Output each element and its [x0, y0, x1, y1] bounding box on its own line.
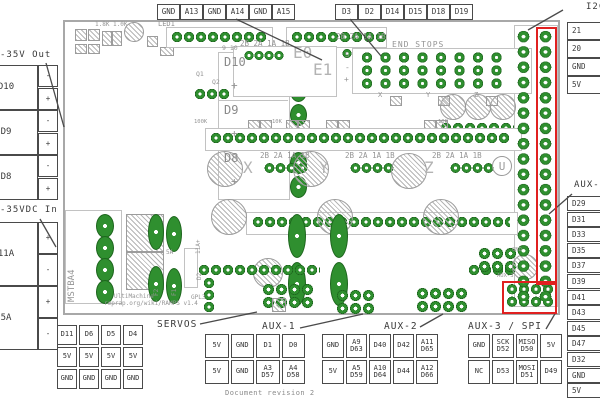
servo-pin: 5V: [123, 347, 143, 367]
aux3-pin: D49: [540, 360, 562, 384]
driver-pads-e0: [244, 50, 284, 61]
aux4-pin: D43: [567, 305, 600, 320]
aux2-pin: 5V: [322, 360, 344, 384]
header-pads: [210, 132, 510, 144]
diode-component: [184, 248, 198, 288]
silkscreen-f2: F2: [154, 272, 160, 296]
aux2-pin: GND: [322, 334, 344, 358]
in-11a-plus: +: [38, 222, 58, 254]
aux4-pin: D47: [567, 336, 600, 351]
silkscreen-d10: D10: [224, 56, 246, 68]
i2c-pin-20: 20: [567, 40, 600, 58]
resistor-component: [88, 44, 100, 54]
resistor-component: [272, 298, 286, 312]
aux4-pin: D37: [567, 258, 600, 273]
out-d9-plus: +: [38, 133, 58, 155]
servo-pin: 5V: [57, 347, 77, 367]
silkscreen-plus: +: [231, 80, 238, 91]
endstop-pin-d15: D15: [404, 4, 427, 20]
resistor-component: [486, 96, 498, 106]
silkscreen-endstop-x: X: [378, 92, 382, 99]
in-5a-name: 5A: [0, 286, 38, 350]
silkscreen-11a: 11A+: [196, 214, 202, 254]
aux4-highlight: [536, 27, 557, 285]
aux1-pin: D0: [282, 334, 306, 358]
servo-pin: GND: [79, 369, 99, 389]
aux1-pin: A4 D58: [282, 360, 306, 384]
thermistor-pin-gnd: GND: [157, 4, 180, 20]
aux4-pin: D33: [567, 227, 600, 242]
out-d10-minus: -: [38, 65, 58, 87]
silkscreen-aux3: AUX-3: [497, 274, 514, 280]
silkscreen-y: Y: [319, 160, 329, 176]
aux2-table: GND A9 D63 D40 D42 A11 D65 5V A5 D59 A10…: [322, 334, 438, 384]
servo-pin: GND: [57, 369, 77, 389]
aux3-pin: MISO D50: [516, 334, 538, 358]
servo-pin: GND: [123, 369, 143, 389]
silkscreen-s: S: [345, 52, 349, 59]
out-d8-plus: +: [38, 178, 58, 200]
silkscreen-plus: +: [344, 76, 349, 84]
aux4-pin: D29: [567, 196, 600, 211]
endstop-pin-d18: D18: [427, 4, 450, 20]
servos-label: SERVOS: [157, 319, 197, 330]
aux4-pin: D39: [567, 274, 600, 289]
endstop-pin-d14: D14: [381, 4, 404, 20]
thermistor-pin-gnd: GND: [203, 4, 226, 20]
i2c-pin-21: 21: [567, 22, 600, 40]
servo-pin: D4: [123, 325, 143, 345]
out-d8-name: D8: [0, 155, 38, 200]
silkscreen-coilpins-y: 2B 2A 1A 1B: [345, 152, 395, 160]
silkscreen-q1: Q1: [196, 71, 204, 78]
silkscreen-reprap-url: reprap.org/wiki/RAMPS v1.4: [104, 301, 198, 307]
aux1-pin: D1: [256, 334, 280, 358]
aux4-pin-gnd: GND: [567, 368, 600, 383]
thermistor-pin-a13: A13: [180, 4, 203, 20]
silkscreen-minus: -: [345, 64, 350, 72]
fuse-pad: [166, 216, 182, 252]
aux4-pin: D41: [567, 290, 600, 305]
aux2-pin: A5 D59: [346, 360, 368, 384]
resistor-component: [88, 29, 100, 41]
servo-pin: D11: [57, 325, 77, 345]
silkscreen-resistor-values: 1.8K 1.0K: [95, 22, 128, 28]
fuse-pad: [288, 214, 306, 258]
aux2-pin: A11 D65: [416, 334, 438, 358]
servo-pin: D5: [101, 325, 121, 345]
aux3-pin: SCK D52: [492, 334, 514, 358]
resistor-component: [102, 31, 112, 46]
servo-pin: GND: [101, 369, 121, 389]
servo-pin: 5V: [101, 347, 121, 367]
out-d10-plus: +: [38, 88, 58, 110]
aux1-pin: GND: [231, 360, 255, 384]
header-pads: [198, 264, 320, 276]
terminal-pad: [96, 236, 114, 260]
aux2-board-pads: [416, 287, 468, 313]
in-11a-name: 11A: [0, 222, 38, 286]
out-d9-minus: -: [38, 110, 58, 132]
aux4-pads-col1: [517, 29, 530, 301]
power-in-label: -35VDC In: [0, 205, 58, 215]
silkscreen-coilpins-e0: 2B 2A 1A 1B: [240, 40, 290, 48]
aux4-pin: D31: [567, 212, 600, 227]
aux3-pin: MOSI D51: [516, 360, 538, 384]
silkscreen-plus: +: [231, 128, 238, 139]
thermistor-pin-gnd: GND: [249, 4, 272, 20]
i2c-label: I2C: [586, 2, 600, 12]
fuse-pad: [148, 214, 164, 250]
header-block-pads: [336, 289, 375, 315]
thermistor-pin-a14: A14: [226, 4, 249, 20]
endstop-pads: [358, 51, 506, 90]
silkscreen-coilpins-x: 2B 2A 1A 1B: [260, 152, 310, 160]
silkscreen-9-10: 9 10: [222, 45, 238, 52]
aux4-pin: D35: [567, 243, 600, 258]
aux4-pin: D45: [567, 321, 600, 336]
aux4-label: AUX-4: [574, 180, 600, 190]
silkscreen-5a: 5A: [166, 250, 173, 256]
ultimachine-logo: U: [492, 156, 512, 176]
fuse-pad: [330, 214, 348, 258]
silkscreen-10k: 10K: [438, 120, 448, 126]
silkscreen-100k: 100K: [194, 120, 207, 126]
aux1-pin: GND: [231, 334, 255, 358]
resistor-component: [75, 44, 87, 54]
silkscreen-endstop-z: Z: [474, 92, 478, 99]
in-5a-minus: -: [38, 318, 58, 350]
silkscreen-x: X: [243, 160, 253, 176]
aux3-pin: D53: [492, 360, 514, 384]
aux2-pin: D44: [393, 360, 415, 384]
power-out-label: -35V Out: [0, 50, 51, 60]
aux1-pin: 5V: [205, 334, 229, 358]
aux1-table: 5V GND D1 D0 5V GND A3 D57 A4 D58: [205, 334, 305, 384]
aux3-table: GND SCK D52 MISO D50 5V NC D53 MOSI D51 …: [468, 334, 562, 384]
i2c-pin-gnd: GND: [567, 58, 600, 76]
silkscreen-e0: E0: [293, 45, 312, 61]
silkscreen-gnd: GND: [512, 248, 522, 254]
endstop-pin-d2: D2: [358, 4, 381, 20]
aux3-pin: NC: [468, 360, 490, 384]
aux2-pin: A12 D66: [416, 360, 438, 384]
driver-pads-z: [450, 162, 494, 174]
silkscreen-endstops: END STOPS: [392, 41, 444, 49]
aux2-pin: D40: [369, 334, 391, 358]
i2c-pin-5v: 5V: [567, 76, 600, 94]
thermistor-pin-a15: A15: [272, 4, 295, 20]
silkscreen-z: Z: [424, 160, 434, 176]
capacitor-component: [391, 153, 427, 189]
aux3-label: AUX-3 / SPI: [468, 321, 542, 332]
silkscreen-coilpins-e1: 2B 2A 1A 1B: [336, 33, 386, 41]
silkscreen-endstop-y: Y: [426, 92, 430, 99]
driver-pads-y: [350, 162, 394, 174]
aux4-pin: D32: [567, 352, 600, 367]
aux2-pin: D42: [393, 334, 415, 358]
silkscreen-d2: D2: [197, 256, 203, 280]
divider: [218, 100, 288, 101]
resistor-component: [390, 96, 402, 106]
silkscreen-mstba4: MSTBA4: [68, 214, 77, 302]
terminal-pad: [96, 214, 114, 238]
aux3-highlight: [502, 281, 557, 314]
silkscreen-f1: F1: [172, 272, 178, 296]
resistor-component: [438, 96, 450, 106]
aux2-pin: A9 D63: [346, 334, 368, 358]
silkscreen-d9: D9: [224, 104, 238, 116]
resistor-component: [147, 36, 158, 47]
silkscreen-q2: Q2: [212, 79, 220, 86]
silkscreen-e1: E1: [313, 62, 332, 78]
in-5a-plus: +: [38, 286, 58, 318]
aux1-pin: A3 D57: [256, 360, 280, 384]
silkscreen-d8: D8: [224, 152, 238, 164]
servo-pin: D6: [79, 325, 99, 345]
resistor-component: [160, 47, 174, 56]
silkscreen-led1: LED1: [158, 21, 175, 28]
document-revision: Document revision 2: [225, 389, 315, 397]
out-d8-minus: -: [38, 155, 58, 177]
capacitor-component: [423, 199, 459, 235]
terminal-pad: [96, 258, 114, 282]
mosfet-pads: [194, 88, 230, 100]
aux3-pin: GND: [468, 334, 490, 358]
aux1-label: AUX-1: [262, 321, 296, 332]
aux3-pin: 5V: [540, 334, 562, 358]
servos-table: D11 D6 D5 D4 5V 5V 5V 5V GND GND GND GND: [57, 325, 143, 389]
endstop-pin-d19: D19: [450, 4, 473, 20]
endstop-pin-d3: D3: [335, 4, 358, 20]
out-d9-name: D9: [0, 110, 38, 155]
out-d10-name: D10: [0, 65, 38, 110]
in-11a-minus: -: [38, 254, 58, 286]
capacitor-component: [211, 199, 247, 235]
silkscreen-coilpins-z: 2B 2A 1A 1B: [432, 152, 482, 160]
aux2-pin: A10 D64: [369, 360, 391, 384]
aux1-pin: 5V: [205, 360, 229, 384]
aux2-label: AUX-2: [384, 321, 418, 332]
ramps-pinout-diagram: LED1 1.8K 1.0K 9 10 D10 + D9 + D8 + 2B 2…: [0, 0, 600, 400]
resistor-component: [75, 29, 87, 41]
silkscreen-10k: 10K: [272, 120, 282, 126]
aux4-pin-5v: 5V: [567, 383, 600, 398]
servo-pin: 5V: [79, 347, 99, 367]
silkscreen-plus: +: [231, 176, 238, 187]
resistor-component: [112, 31, 122, 46]
aux1-board-pads: [262, 283, 314, 309]
